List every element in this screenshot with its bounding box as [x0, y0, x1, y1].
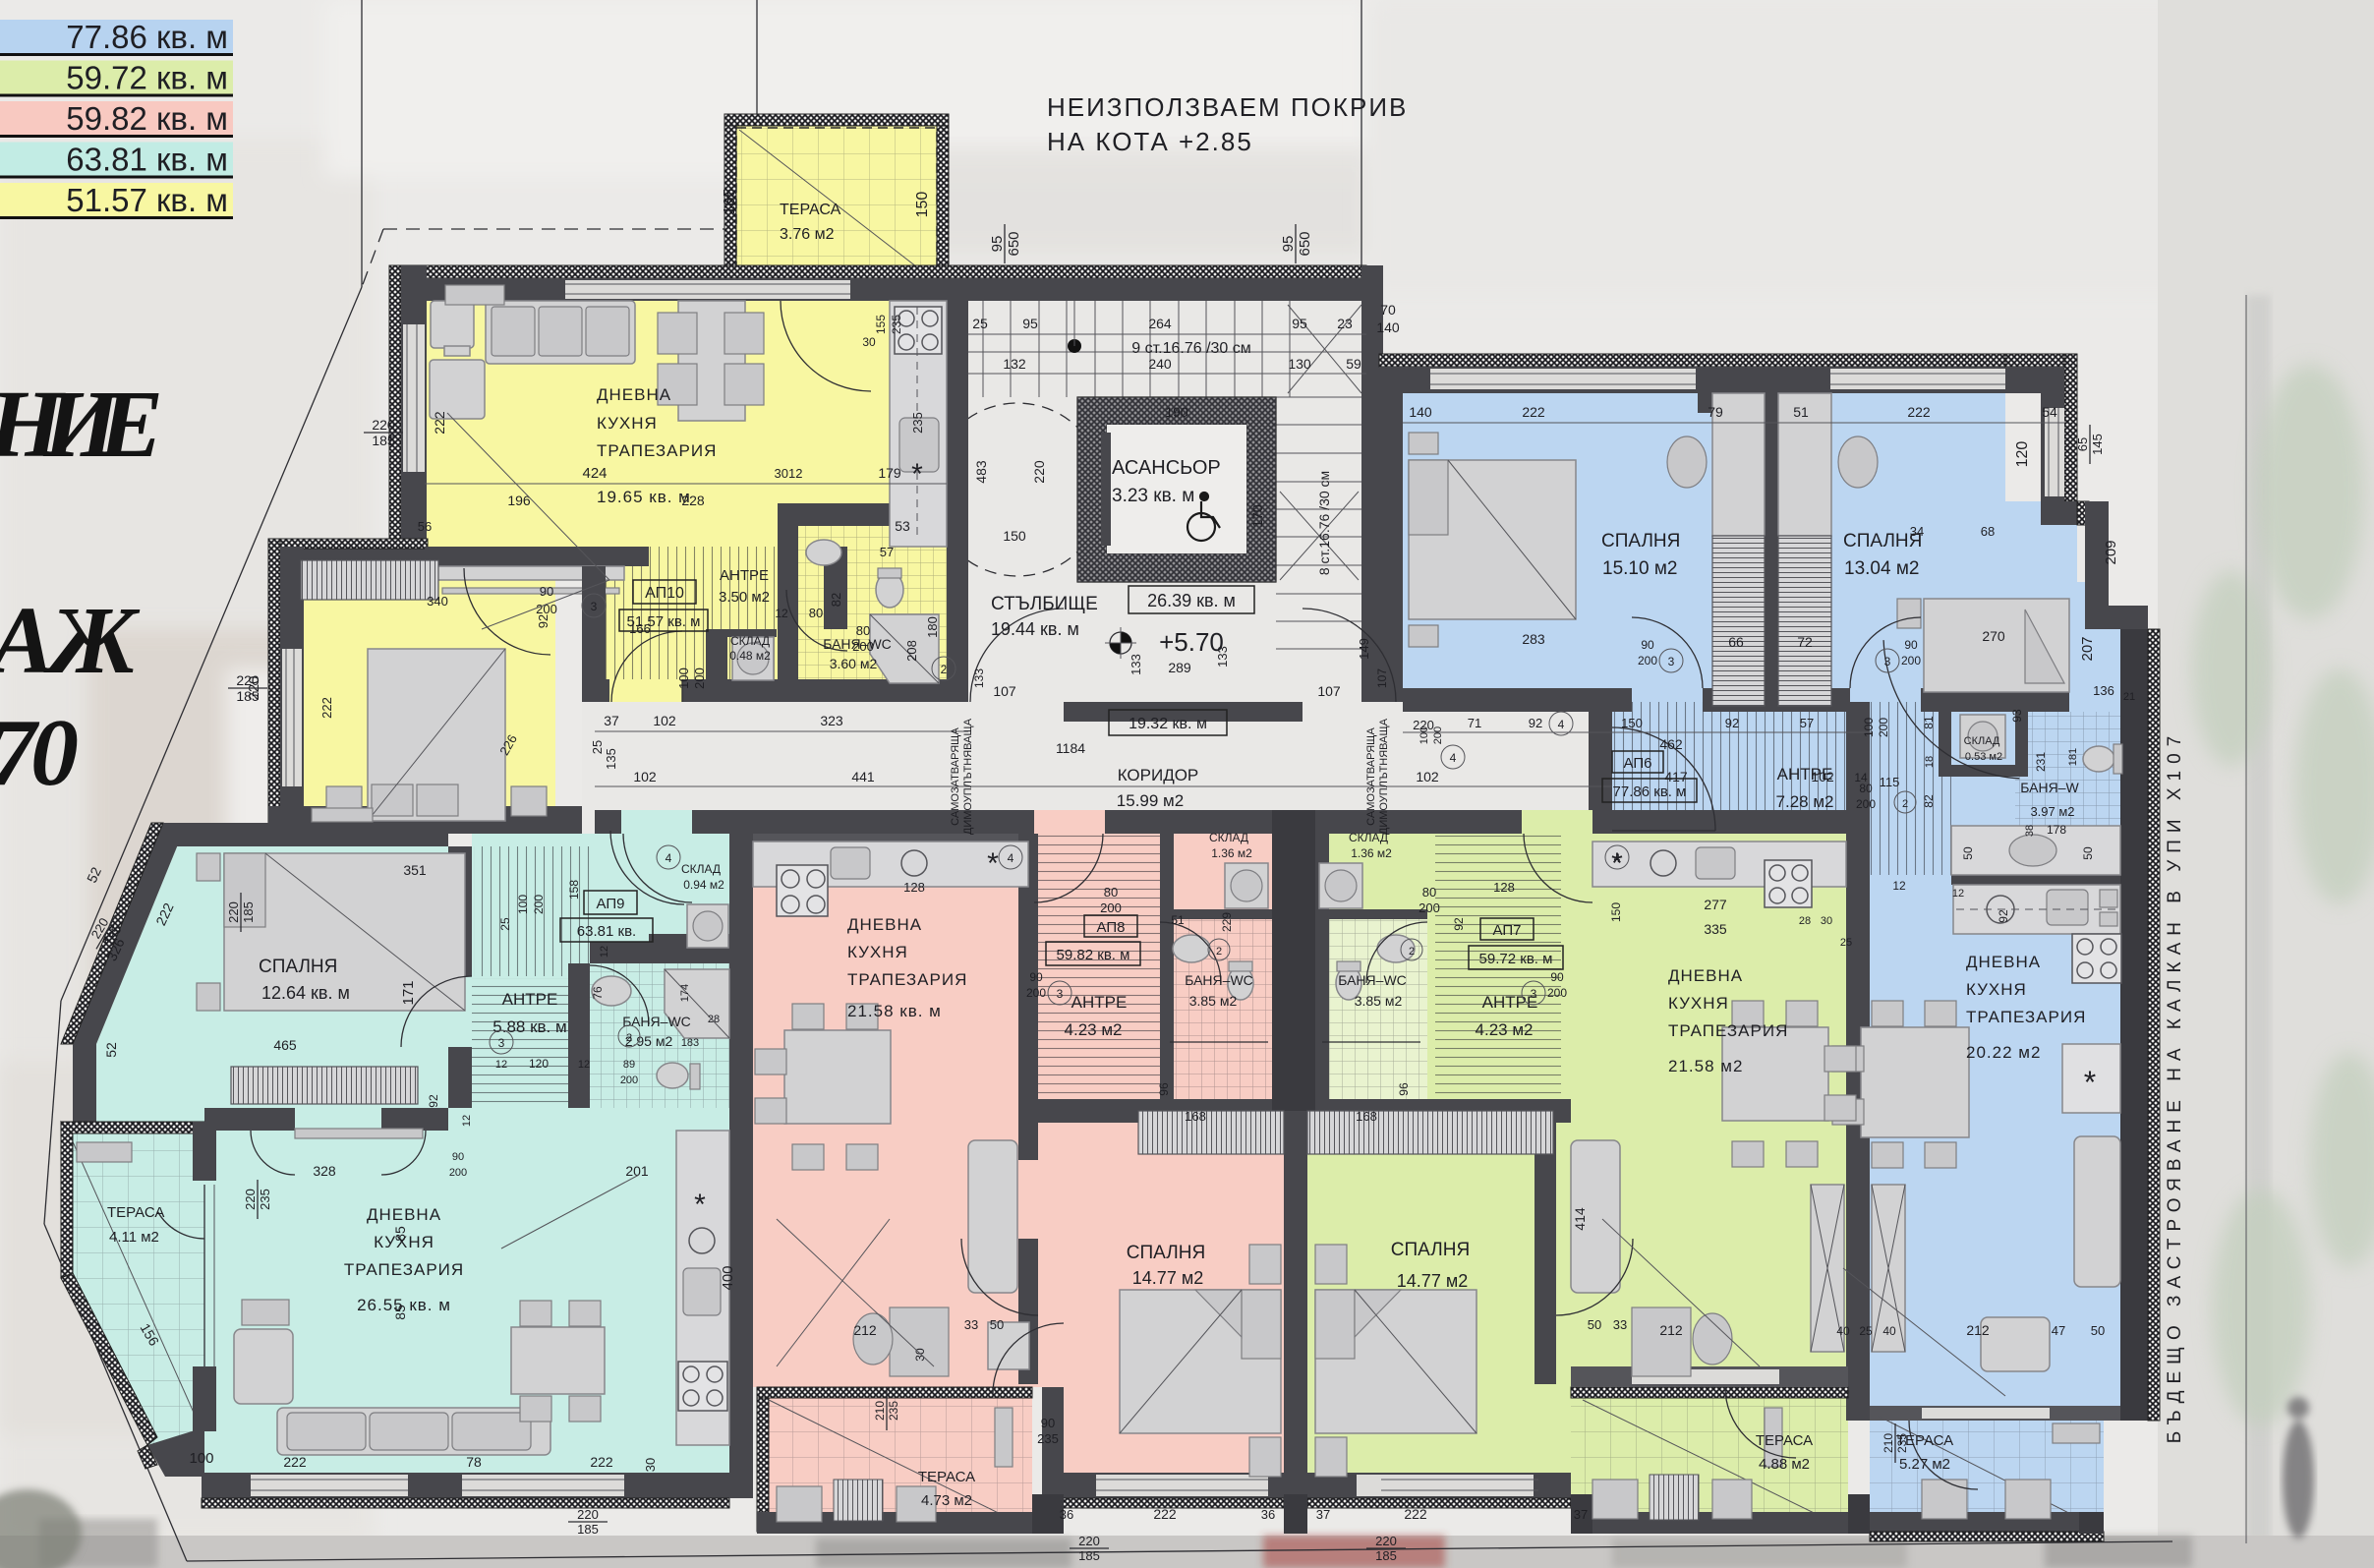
svg-text:174: 174 — [679, 984, 691, 1002]
svg-text:СКЛАД: СКЛАД — [1349, 831, 1388, 844]
svg-text:150: 150 — [1609, 902, 1623, 922]
svg-text:133: 133 — [972, 668, 986, 688]
svg-text:3012: 3012 — [775, 466, 803, 481]
svg-text:12: 12 — [1892, 879, 1906, 893]
svg-text:56: 56 — [418, 519, 432, 534]
svg-text:81: 81 — [1922, 716, 1936, 729]
svg-text:2: 2 — [1902, 798, 1908, 810]
svg-text:51.57 кв. м: 51.57 кв. м — [627, 613, 701, 630]
svg-text:277: 277 — [1704, 897, 1727, 912]
svg-text:483: 483 — [973, 460, 989, 484]
svg-text:222: 222 — [283, 1454, 307, 1470]
svg-text:АП8: АП8 — [1097, 919, 1126, 936]
svg-text:ДНЕВНА: ДНЕВНА — [1966, 953, 2041, 971]
svg-text:140: 140 — [1409, 404, 1432, 420]
svg-text:12: 12 — [1952, 888, 1964, 900]
svg-text:АП9: АП9 — [597, 896, 625, 912]
svg-text:90: 90 — [1029, 970, 1043, 984]
svg-text:4: 4 — [1008, 851, 1014, 865]
svg-text:12: 12 — [599, 946, 610, 958]
svg-text:90: 90 — [452, 1151, 464, 1163]
svg-text:ДИМОУПЛЪТНЯВАЩА: ДИМОУПЛЪТНЯВАЩА — [962, 718, 974, 835]
svg-text:235: 235 — [890, 315, 903, 334]
svg-text:21.58 м2: 21.58 м2 — [1668, 1057, 1743, 1075]
svg-text:90: 90 — [1641, 638, 1654, 652]
svg-text:107: 107 — [1375, 668, 1389, 688]
svg-text:209: 209 — [2103, 540, 2119, 564]
svg-text:96: 96 — [1397, 1082, 1411, 1096]
svg-text:25: 25 — [498, 917, 512, 931]
svg-text:21.58 кв. м: 21.58 кв. м — [847, 1002, 942, 1020]
svg-text:77.86 кв. м: 77.86 кв. м — [1613, 784, 1687, 800]
svg-text:85: 85 — [392, 1226, 408, 1242]
svg-text:3.60 м2: 3.60 м2 — [830, 656, 878, 671]
svg-text:200: 200 — [1026, 986, 1046, 1000]
svg-text:190: 190 — [1165, 404, 1188, 420]
svg-text:200: 200 — [1547, 986, 1567, 1000]
svg-text:78: 78 — [466, 1454, 482, 1470]
svg-text:СПАЛНЯ: СПАЛНЯ — [1391, 1240, 1470, 1260]
svg-text:136: 136 — [2093, 683, 2114, 698]
svg-text:120: 120 — [2014, 441, 2031, 468]
svg-text:СКЛАД: СКЛАД — [1209, 831, 1248, 844]
svg-text:168: 168 — [1185, 1109, 1206, 1124]
svg-text:323: 323 — [820, 713, 843, 728]
svg-text:465: 465 — [273, 1037, 297, 1053]
svg-text:25: 25 — [1859, 1324, 1873, 1338]
svg-text:ДНЕВНА: ДНЕВНА — [597, 385, 671, 404]
svg-text:70: 70 — [1380, 302, 1396, 318]
svg-text:ТРАПЕЗАРИЯ: ТРАПЕЗАРИЯ — [344, 1260, 464, 1279]
svg-text:БАНЯ–WC: БАНЯ–WC — [823, 636, 892, 652]
svg-text:270: 270 — [1982, 628, 2005, 644]
svg-text:220: 220 — [1375, 1534, 1397, 1548]
svg-text:441: 441 — [851, 769, 875, 784]
svg-text:400: 400 — [720, 1265, 736, 1290]
svg-text:231: 231 — [2034, 752, 2048, 772]
svg-text:23: 23 — [1337, 316, 1353, 331]
svg-text:59: 59 — [1346, 356, 1361, 372]
svg-text:90: 90 — [1041, 1416, 1055, 1430]
svg-text:185: 185 — [236, 688, 260, 704]
svg-text:33: 33 — [1613, 1317, 1627, 1332]
svg-text:222: 222 — [432, 411, 447, 435]
svg-text:77.86 кв. м: 77.86 кв. м — [66, 19, 228, 55]
svg-text:93: 93 — [2010, 709, 2024, 723]
svg-text:140: 140 — [1376, 319, 1400, 335]
svg-text:9 ст.16.76 /30 см: 9 ст.16.76 /30 см — [1131, 340, 1251, 357]
svg-text:235: 235 — [887, 1401, 900, 1421]
svg-text:12: 12 — [578, 1059, 590, 1071]
svg-text:НА КОТА +2.85: НА КОТА +2.85 — [1047, 127, 1253, 156]
svg-text:3: 3 — [1057, 987, 1064, 1001]
svg-text:ТРАПЕЗАРИЯ: ТРАПЕЗАРИЯ — [847, 970, 967, 989]
svg-text:4.88 м2: 4.88 м2 — [1759, 1456, 1810, 1473]
svg-text:*: * — [911, 458, 923, 491]
svg-text:13.04 м2: 13.04 м2 — [1844, 558, 1919, 579]
svg-text:2: 2 — [626, 1032, 632, 1044]
svg-text:222: 222 — [1907, 404, 1931, 420]
svg-text:51: 51 — [1793, 404, 1809, 420]
svg-text:1.36 м2: 1.36 м2 — [1351, 846, 1392, 860]
svg-text:207: 207 — [2079, 636, 2096, 661]
svg-text:229: 229 — [1220, 912, 1234, 932]
svg-text:414: 414 — [1572, 1207, 1588, 1231]
svg-text:222: 222 — [319, 697, 334, 719]
svg-text:165: 165 — [722, 189, 738, 215]
svg-text:210: 210 — [1882, 1433, 1895, 1453]
svg-text:135: 135 — [604, 748, 618, 770]
svg-text:НИЕ: НИЕ — [0, 372, 163, 478]
svg-text:155: 155 — [874, 315, 888, 334]
svg-text:90: 90 — [540, 584, 553, 599]
svg-text:37: 37 — [1574, 1507, 1588, 1522]
svg-text:3.97 м2: 3.97 м2 — [2030, 804, 2074, 819]
svg-text:220: 220 — [1078, 1534, 1100, 1548]
svg-text:158: 158 — [567, 880, 581, 900]
svg-text:12: 12 — [775, 607, 788, 620]
svg-text:3: 3 — [591, 600, 598, 613]
svg-text:145: 145 — [2090, 434, 2105, 455]
svg-text:4: 4 — [666, 851, 672, 865]
svg-text:235: 235 — [1895, 1433, 1909, 1453]
svg-text:15.99 м2: 15.99 м2 — [1117, 791, 1184, 810]
svg-text:65: 65 — [2075, 437, 2090, 451]
svg-text:76: 76 — [591, 986, 605, 1000]
svg-text:30: 30 — [1821, 915, 1832, 927]
svg-text:ТРАПЕЗАРИЯ: ТРАПЕЗАРИЯ — [1668, 1021, 1788, 1040]
svg-text:120: 120 — [529, 1057, 549, 1071]
svg-text:185: 185 — [1375, 1548, 1397, 1563]
svg-text:181: 181 — [2067, 748, 2079, 766]
svg-text:5.88 кв. м: 5.88 кв. м — [492, 1017, 566, 1036]
svg-text:ДНЕВНА: ДНЕВНА — [367, 1205, 441, 1224]
svg-text:14.77 м2: 14.77 м2 — [1397, 1271, 1468, 1291]
svg-text:200: 200 — [1638, 654, 1657, 668]
svg-text:53: 53 — [895, 518, 910, 534]
svg-text:102: 102 — [633, 769, 657, 784]
svg-text:150: 150 — [1003, 528, 1026, 544]
svg-text:3: 3 — [1668, 655, 1675, 668]
svg-text:*: * — [2084, 1065, 2096, 1100]
svg-text:4.23 м2: 4.23 м2 — [1065, 1020, 1123, 1039]
svg-text:АП10: АП10 — [645, 585, 684, 602]
svg-text:264: 264 — [1148, 316, 1172, 331]
svg-text:132: 132 — [1003, 356, 1026, 372]
svg-text:19.32 кв. м: 19.32 кв. м — [1129, 716, 1207, 732]
svg-text:200: 200 — [620, 1074, 638, 1086]
svg-text:3: 3 — [1531, 987, 1537, 1001]
svg-text:19.65 кв. м: 19.65 кв. м — [597, 488, 691, 506]
svg-text:328: 328 — [313, 1163, 336, 1179]
svg-text:3.23 кв. м: 3.23 кв. м — [1112, 486, 1194, 506]
svg-text:1184: 1184 — [1056, 740, 1085, 756]
svg-text:51.57 кв. м: 51.57 кв. м — [66, 182, 228, 218]
svg-text:235: 235 — [258, 1189, 272, 1210]
svg-text:210: 210 — [873, 1401, 887, 1421]
svg-text:4: 4 — [1450, 751, 1457, 765]
svg-text:БАНЯ–WC: БАНЯ–WC — [622, 1014, 691, 1029]
svg-text:0.53 м2: 0.53 м2 — [1965, 751, 2002, 763]
svg-text:220: 220 — [372, 417, 395, 433]
svg-text:АНТРЕ: АНТРЕ — [502, 990, 558, 1009]
svg-text:12.64 кв. м: 12.64 кв. м — [261, 983, 350, 1003]
svg-text:30: 30 — [643, 1458, 658, 1472]
svg-text:335: 335 — [1704, 921, 1727, 937]
svg-text:БЪДЕЩО ЗАСТРОЯВАНЕ НА КАЛКА: БЪДЕЩО ЗАСТРОЯВАНЕ НА КАЛКАН В УПИ X107 — [2165, 729, 2185, 1443]
svg-text:59.72 кв. м: 59.72 кв. м — [66, 60, 228, 96]
svg-text:50: 50 — [2081, 846, 2095, 860]
svg-text:170: 170 — [1249, 504, 1265, 528]
svg-text:ТЕРАСА: ТЕРАСА — [107, 1204, 164, 1221]
svg-text:2: 2 — [1216, 946, 1222, 958]
svg-text:СКЛАД: СКЛАД — [730, 634, 770, 648]
svg-text:25: 25 — [590, 740, 605, 754]
svg-text:100: 100 — [516, 895, 530, 914]
svg-text:30: 30 — [913, 1348, 927, 1362]
svg-text:72: 72 — [1797, 634, 1813, 650]
svg-text:*: * — [987, 847, 999, 880]
svg-text:2: 2 — [941, 663, 948, 676]
svg-text:3.85 м2: 3.85 м2 — [1355, 993, 1403, 1009]
svg-text:38: 38 — [2024, 825, 2036, 837]
svg-text:89: 89 — [623, 1059, 635, 1071]
svg-text:222: 222 — [1153, 1506, 1177, 1522]
svg-text:ТЕРАСА: ТЕРАСА — [780, 202, 841, 218]
svg-text:37: 37 — [1316, 1507, 1330, 1522]
svg-text:222: 222 — [1522, 404, 1545, 420]
svg-text:18: 18 — [1924, 756, 1936, 768]
svg-text:200: 200 — [449, 1167, 467, 1179]
svg-text:50: 50 — [1961, 846, 1975, 860]
svg-text:289: 289 — [1168, 660, 1191, 675]
svg-text:96: 96 — [1157, 1082, 1171, 1096]
svg-text:57: 57 — [1800, 716, 1814, 730]
svg-text:СТЪЛБИЩЕ: СТЪЛБИЩЕ — [991, 594, 1098, 614]
svg-text:59.82 кв. м: 59.82 кв. м — [1057, 947, 1130, 963]
svg-text:СКЛАД: СКЛАД — [1964, 735, 2000, 747]
svg-text:50: 50 — [990, 1317, 1004, 1332]
svg-text:100: 100 — [1862, 718, 1876, 737]
svg-text:220: 220 — [236, 672, 260, 688]
svg-text:3.85 м2: 3.85 м2 — [1189, 993, 1238, 1009]
svg-text:222: 222 — [1404, 1506, 1427, 1522]
svg-text:70: 70 — [0, 700, 79, 806]
svg-text:АП7: АП7 — [1493, 922, 1522, 939]
svg-text:80: 80 — [809, 606, 823, 620]
svg-text:208: 208 — [904, 640, 919, 662]
svg-text:235: 235 — [910, 412, 925, 434]
svg-text:100: 100 — [676, 668, 691, 689]
svg-text:20.22 м2: 20.22 м2 — [1966, 1043, 2041, 1062]
svg-text:28: 28 — [708, 1014, 720, 1025]
svg-text:28: 28 — [1799, 915, 1811, 927]
svg-text:СКЛАД: СКЛАД — [681, 862, 721, 876]
svg-text:424: 424 — [582, 465, 607, 482]
svg-text:220: 220 — [577, 1507, 599, 1522]
svg-text:240: 240 — [1148, 356, 1172, 372]
svg-text:19.44 кв. м: 19.44 кв. м — [991, 619, 1079, 639]
svg-text:80: 80 — [1422, 885, 1436, 900]
svg-text:185: 185 — [1078, 1548, 1100, 1563]
svg-text:220: 220 — [243, 1189, 258, 1210]
svg-text:130: 130 — [1288, 356, 1311, 372]
svg-text:ДНЕВНА: ДНЕВНА — [1668, 966, 1743, 985]
svg-text:40: 40 — [1882, 1324, 1896, 1338]
svg-text:4: 4 — [1558, 718, 1565, 731]
svg-text:171: 171 — [400, 980, 417, 1005]
svg-text:СПАЛНЯ: СПАЛНЯ — [1843, 531, 1922, 552]
svg-text:150: 150 — [1621, 716, 1643, 730]
svg-text:25: 25 — [1840, 937, 1852, 949]
svg-text:АНТРЕ: АНТРЕ — [1071, 993, 1128, 1012]
svg-text:201: 201 — [625, 1163, 649, 1179]
svg-text:200: 200 — [1877, 718, 1890, 737]
svg-text:200: 200 — [692, 668, 707, 689]
svg-text:168: 168 — [1356, 1109, 1377, 1124]
svg-text:82: 82 — [829, 593, 843, 607]
svg-text:133: 133 — [1129, 654, 1143, 675]
svg-text:12: 12 — [495, 1059, 507, 1071]
svg-text:107: 107 — [993, 683, 1016, 699]
svg-text:12: 12 — [461, 1115, 473, 1127]
svg-text:200: 200 — [1856, 797, 1876, 811]
svg-text:15.10 м2: 15.10 м2 — [1602, 558, 1677, 579]
svg-text:2: 2 — [1409, 946, 1415, 958]
svg-text:*: * — [694, 1189, 706, 1221]
svg-text:63.81 кв. м: 63.81 кв. м — [66, 142, 228, 178]
svg-text:БАНЯ–WC: БАНЯ–WC — [1185, 972, 1253, 988]
svg-text:462: 462 — [1659, 736, 1683, 752]
svg-text:3.50 м2: 3.50 м2 — [719, 589, 770, 606]
svg-text:БАНЯ–WC: БАНЯ–WC — [1338, 972, 1407, 988]
svg-text:САМОЗАТВАРЯЩА: САМОЗАТВАРЯЩА — [1365, 727, 1377, 826]
svg-text:57: 57 — [880, 545, 894, 559]
svg-text:БАНЯ–W: БАНЯ–W — [2020, 780, 2079, 795]
svg-text:185: 185 — [577, 1522, 599, 1537]
svg-text:100: 100 — [1419, 726, 1430, 744]
svg-text:СПАЛНЯ: СПАЛНЯ — [259, 957, 337, 977]
svg-text:59.72 кв. м: 59.72 кв. м — [1479, 951, 1553, 967]
svg-text:50: 50 — [1588, 1317, 1601, 1332]
svg-text:149: 149 — [1357, 638, 1371, 660]
svg-text:0.94 м2: 0.94 м2 — [683, 878, 724, 892]
svg-text:71: 71 — [1468, 716, 1481, 730]
svg-text:128: 128 — [1493, 880, 1515, 895]
svg-text:283: 283 — [1522, 631, 1545, 647]
svg-text:ТРАПЕЗАРИЯ: ТРАПЕЗАРИЯ — [597, 441, 717, 460]
svg-text:178: 178 — [2047, 823, 2066, 837]
svg-text:КУХНЯ: КУХНЯ — [1668, 994, 1729, 1013]
svg-text:100: 100 — [189, 1450, 213, 1467]
svg-text:4.73 м2: 4.73 м2 — [921, 1492, 972, 1509]
svg-text:150: 150 — [914, 192, 931, 218]
svg-text:33: 33 — [964, 1317, 978, 1332]
svg-text:183: 183 — [681, 1037, 699, 1049]
svg-text:92: 92 — [1529, 716, 1542, 730]
svg-text:СПАЛНЯ: СПАЛНЯ — [1127, 1243, 1205, 1263]
svg-text:200: 200 — [1100, 900, 1122, 915]
svg-text:220: 220 — [226, 901, 241, 923]
svg-text:650: 650 — [1006, 231, 1022, 256]
svg-text:54: 54 — [2042, 404, 2057, 420]
svg-text:222: 222 — [590, 1454, 613, 1470]
svg-text:95: 95 — [1292, 316, 1307, 331]
svg-text:650: 650 — [1297, 231, 1313, 256]
svg-text:ТЕРАСА: ТЕРАСА — [1756, 1432, 1813, 1449]
svg-text:179: 179 — [878, 465, 901, 481]
svg-text:26.39 кв. м: 26.39 кв. м — [1147, 591, 1236, 610]
svg-text:102: 102 — [1416, 769, 1439, 784]
svg-text:40: 40 — [1836, 1324, 1850, 1338]
svg-text:220: 220 — [1031, 460, 1047, 484]
svg-text:КОРИДОР: КОРИДОР — [1118, 766, 1199, 784]
svg-text:212: 212 — [1659, 1322, 1683, 1338]
svg-text:0.48 м2: 0.48 м2 — [729, 649, 771, 663]
svg-text:200: 200 — [532, 895, 546, 914]
svg-text:3: 3 — [498, 1036, 505, 1050]
svg-text:417: 417 — [1664, 769, 1688, 784]
svg-text:80: 80 — [1859, 782, 1873, 795]
svg-text:СПАЛНЯ: СПАЛНЯ — [1601, 531, 1680, 552]
svg-text:180: 180 — [925, 616, 940, 638]
svg-text:АНТРЕ: АНТРЕ — [720, 567, 769, 584]
svg-text:200: 200 — [1901, 654, 1921, 668]
svg-text:128: 128 — [903, 880, 925, 895]
svg-text:90: 90 — [1904, 638, 1918, 652]
svg-text:3: 3 — [1884, 655, 1891, 668]
svg-text:14.77 м2: 14.77 м2 — [1132, 1268, 1203, 1288]
svg-text:200: 200 — [1432, 726, 1444, 744]
svg-text:90: 90 — [1550, 970, 1564, 984]
svg-text:212: 212 — [853, 1322, 877, 1338]
svg-text:82: 82 — [1922, 794, 1936, 808]
svg-text:ДНЕВНА: ДНЕВНА — [847, 915, 922, 934]
svg-text:68: 68 — [1981, 524, 1995, 539]
svg-text:1.36 м2: 1.36 м2 — [1211, 846, 1252, 860]
svg-text:185: 185 — [372, 433, 395, 448]
svg-text:7.28 м2: 7.28 м2 — [1776, 792, 1834, 811]
svg-text:8 ст.16.76 /30 см: 8 ст.16.76 /30 см — [1316, 471, 1332, 575]
svg-text:200: 200 — [1419, 900, 1440, 915]
svg-text:80: 80 — [1104, 885, 1118, 900]
svg-text:59.82 кв. м: 59.82 кв. м — [66, 100, 228, 137]
svg-text:185: 185 — [241, 901, 256, 923]
svg-text:107: 107 — [1317, 683, 1341, 699]
svg-text:63.81 кв.: 63.81 кв. — [577, 923, 636, 940]
svg-text:340: 340 — [427, 594, 448, 609]
svg-text:37: 37 — [604, 713, 619, 728]
svg-text:5.27 м2: 5.27 м2 — [1899, 1456, 1950, 1473]
svg-text:235: 235 — [1037, 1431, 1059, 1446]
svg-text:51: 51 — [1171, 913, 1185, 927]
svg-text:95: 95 — [1022, 316, 1038, 331]
svg-text:92: 92 — [427, 1094, 440, 1108]
svg-text:47: 47 — [2052, 1323, 2065, 1338]
svg-text:115: 115 — [1880, 775, 1900, 789]
svg-text:92: 92 — [1997, 909, 2010, 923]
svg-text:21: 21 — [2123, 691, 2135, 703]
svg-text:30: 30 — [862, 335, 876, 349]
svg-text:92: 92 — [1452, 917, 1466, 931]
svg-text:212: 212 — [1966, 1322, 1990, 1338]
svg-text:92: 92 — [1725, 716, 1739, 730]
svg-text:КУХНЯ: КУХНЯ — [1966, 980, 2027, 999]
svg-text:36: 36 — [1261, 1507, 1275, 1522]
svg-text:52: 52 — [103, 1042, 119, 1058]
svg-text:102: 102 — [653, 713, 676, 728]
svg-text:ТЕРАСА: ТЕРАСА — [918, 1469, 975, 1485]
